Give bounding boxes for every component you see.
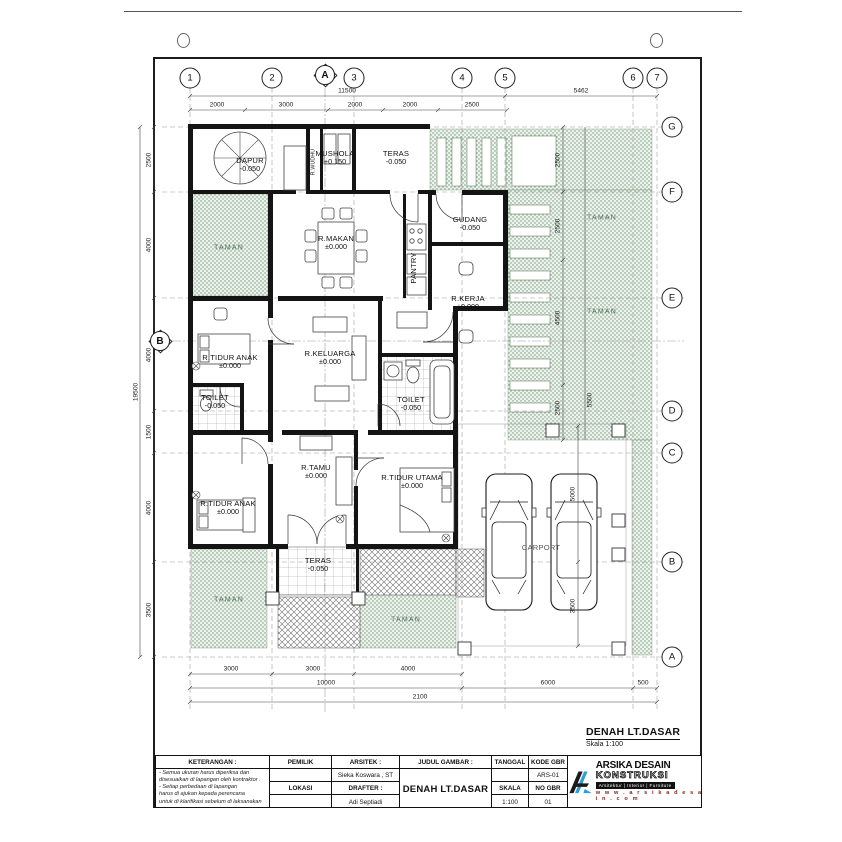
grid-label: B <box>669 557 675 568</box>
room-level: -0.050 <box>397 404 425 412</box>
room-level: ±0.000 <box>301 472 331 480</box>
room-level: ±0.000 <box>202 362 258 370</box>
dim-left-seg: 2500 <box>146 153 153 168</box>
dim-bottom-seg: 3000 <box>306 666 321 673</box>
section-letter: A <box>315 65 335 85</box>
room-label-rtidur-utama: R.TIDUR UTAMA ±0.000 <box>381 474 443 490</box>
room-level: ±0.000 <box>305 358 356 366</box>
room-label-rmakan: R.MAKAN ±0.000 <box>318 235 354 251</box>
note-line: disesuaikan di lapangan oleh kontraktor … <box>159 777 265 784</box>
room-label-taman-bawah-kiri: TAMAN <box>214 596 244 603</box>
grid-bubble-F: F <box>662 182 683 203</box>
drafter-header: DRAFTER : <box>332 782 399 795</box>
tanggal-value <box>492 769 528 782</box>
grid-bubble-A: A <box>662 647 683 668</box>
grid-bubble-1: 1 <box>180 68 201 89</box>
room-name: PANTRY <box>410 252 418 283</box>
pemilik-value <box>270 769 331 782</box>
logo-website: w w w . a r s i k a d e s a i n . c o m <box>596 790 703 802</box>
car-icon <box>482 474 536 610</box>
dim-top-seg: 3000 <box>279 102 294 109</box>
room-label-taman-kanan-1: TAMAN <box>587 214 617 221</box>
room-level: +0.150 <box>316 158 355 166</box>
grid-label: 3 <box>351 73 356 84</box>
room-level: -0.050 <box>236 165 264 173</box>
room-label-pantry: PANTRY <box>410 252 418 283</box>
room-name: TAMAN <box>587 214 617 221</box>
dim-inner-right: 2500 <box>555 219 562 234</box>
room-label-toilet-kanan: TOILET -0.050 <box>397 396 425 412</box>
grid-bubble-C: C <box>662 443 683 464</box>
grid-label: 4 <box>459 73 464 84</box>
grid-bubble-3: 3 <box>344 68 365 89</box>
room-label-carport: CARPORT <box>522 544 560 552</box>
room-level: -0.050 <box>201 402 229 410</box>
keterangan-notes: - Semua ukuran harus diperiksa dan dises… <box>159 770 265 806</box>
dim-bottom-seg: 4000 <box>401 666 416 673</box>
room-name: TAMAN <box>587 308 617 315</box>
drawing-title: DENAH LT.DASAR <box>403 784 488 795</box>
tb-col-tanggal: TANGGAL SKALA 1:100 <box>491 756 528 807</box>
sheet-title-block: DENAH LT.DASAR Skala 1:100 <box>586 722 702 748</box>
logo-name-bottom: KONSTRUKSI <box>596 771 669 781</box>
grid-label: E <box>669 293 675 304</box>
kode-value: ARS-01 <box>529 769 567 782</box>
dim-bottom-overall: 6000 <box>541 680 556 687</box>
drafter-name: Adi Septiadi <box>332 795 399 809</box>
dim-left-seg: 4000 <box>146 501 153 516</box>
tanggal-header: TANGGAL <box>492 756 528 769</box>
grid-bubble-G: G <box>662 117 683 138</box>
dim-left-seg: 4000 <box>146 348 153 363</box>
section-marker-A: A <box>312 62 338 88</box>
room-level: -0.050 <box>305 565 331 573</box>
room-level: ±0.000 <box>200 508 256 516</box>
dim-inner-right: 2500 <box>555 401 562 416</box>
note-line: harus di ajukan kepada perencana <box>159 791 265 798</box>
room-label-rwudhu: R.WUDHU <box>311 149 316 175</box>
grid-label: F <box>669 187 675 198</box>
dim-inner-right: 5500 <box>587 393 594 408</box>
grid-label: 5 <box>502 73 507 84</box>
room-label-rtidur-anak-2: R.TIDUR ANAK ±0.000 <box>200 500 256 516</box>
dim-top-seg: 2000 <box>210 102 225 109</box>
lokasi-header: LOKASI <box>270 782 331 795</box>
dim-carport: 5000 <box>570 487 577 502</box>
dim-left-seg: 1500 <box>146 425 153 440</box>
room-label-dapur: DAPUR -0.050 <box>236 157 264 173</box>
logo-mark-icon <box>568 764 592 800</box>
tb-col-judul: JUDUL GAMBAR : DENAH LT.DASAR <box>399 756 491 807</box>
kode-header: KODE GBR <box>529 756 567 769</box>
grid-bubble-2: 2 <box>262 68 283 89</box>
title-block: KETERANGAN : - Semua ukuran harus diperi… <box>155 755 702 808</box>
tb-col-arsitek: ARSITEK : Sieka Koswara , ST DRAFTER : A… <box>331 756 399 807</box>
room-label-rkerja: R.KERJA ±0.000 <box>451 295 484 311</box>
tb-col-logo: ARSIKA DESAIN KONSTRUKSI Arsitektur | In… <box>567 756 703 807</box>
dim-left-overall: 19500 <box>133 383 140 401</box>
judul-header: JUDUL GAMBAR : <box>400 756 491 769</box>
room-label-taman-kiri: TAMAN <box>214 244 244 251</box>
dim-top-overall-1: 11500 <box>338 88 356 95</box>
grid-bubble-E: E <box>662 288 683 309</box>
section-label: A <box>321 70 328 81</box>
dim-left-seg: 3500 <box>146 603 153 618</box>
section-letter: B <box>150 331 170 351</box>
room-level: -0.050 <box>453 224 488 232</box>
dim-bottom-total: 2100 <box>413 694 428 701</box>
plan-linework <box>0 0 842 842</box>
note-line: - Semua ukuran harus diperiksa dan <box>159 770 265 777</box>
dim-top-seg: 2500 <box>465 102 480 109</box>
room-level: ±0.000 <box>318 243 354 251</box>
sheet-title: DENAH LT.DASAR <box>586 726 680 740</box>
room-label-teras-bawah: TERAS -0.050 <box>305 557 331 573</box>
dim-bottom-seg: 3000 <box>224 666 239 673</box>
grid-label: 7 <box>654 73 659 84</box>
dim-bottom-overall: 500 <box>637 680 648 687</box>
arsitek-header: ARSITEK : <box>332 756 399 769</box>
note-line: - Setiap perbedaan di lapangan <box>159 784 265 791</box>
room-label-rkeluarga: R.KELUARGA ±0.000 <box>305 350 356 366</box>
tb-col-kode: KODE GBR ARS-01 NO GBR 01 <box>528 756 567 807</box>
dim-carport: 3500 <box>570 599 577 614</box>
room-label-mushola: MUSHOLA +0.150 <box>316 150 355 166</box>
room-label-rtamu: R.TAMU ±0.000 <box>301 464 331 480</box>
grid-label: C <box>669 448 676 459</box>
skala-value: 1:100 <box>492 795 528 809</box>
grid-bubble-D: D <box>662 401 683 422</box>
grid-label: G <box>668 122 675 133</box>
tb-col-keterangan: KETERANGAN : - Semua ukuran harus diperi… <box>156 756 269 807</box>
room-name: TAMAN <box>214 244 244 251</box>
nogbr-value: 01 <box>529 795 567 809</box>
grid-label: 6 <box>630 73 635 84</box>
skala-header: SKALA <box>492 782 528 795</box>
dim-top-seg: 2000 <box>348 102 363 109</box>
room-label-taman-bawah-kanan: TAMAN <box>391 616 421 623</box>
room-name: TAMAN <box>214 596 244 603</box>
room-name: CARPORT <box>522 544 560 552</box>
grid-bubble-5: 5 <box>495 68 516 89</box>
keterangan-header: KETERANGAN : <box>156 756 269 769</box>
grid-label: 1 <box>187 73 192 84</box>
dim-top-overall-2: 5462 <box>574 88 589 95</box>
dim-bottom-overall: 10000 <box>317 680 335 687</box>
dim-inner-right: 4500 <box>555 311 562 326</box>
nogbr-header: NO GBR <box>529 782 567 795</box>
grid-bubble-4: 4 <box>452 68 473 89</box>
arsitek-name: Sieka Koswara , ST <box>332 769 399 782</box>
room-level: ±0.000 <box>451 303 484 311</box>
room-label-taman-kanan-2: TAMAN <box>587 308 617 315</box>
logo-tagline: Arsitektur | Interior | Furniture <box>596 782 675 789</box>
room-label-gudang: GUDANG -0.050 <box>453 216 488 232</box>
dim-left-seg: 4000 <box>146 238 153 253</box>
company-logo: ARSIKA DESAIN KONSTRUKSI Arsitektur | In… <box>568 756 703 807</box>
dim-inner-right: 2500 <box>555 153 562 168</box>
tb-col-pemilik: PEMILIK LOKASI <box>269 756 331 807</box>
judul-value: DENAH LT.DASAR <box>400 769 491 809</box>
section-label: B <box>156 336 163 347</box>
grid-label: 2 <box>269 73 274 84</box>
room-level: ±0.000 <box>381 482 443 490</box>
grid-bubble-6: 6 <box>623 68 644 89</box>
pemilik-header: PEMILIK <box>270 756 331 769</box>
room-label-toilet-kiri: TOILET -0.050 <box>201 394 229 410</box>
sheet-scale: Skala 1:100 <box>586 741 702 748</box>
carport-boundary <box>458 424 626 646</box>
room-label-teras-atas: TERAS -0.050 <box>383 150 409 166</box>
lokasi-value <box>270 795 331 809</box>
grid-bubble-7: 7 <box>647 68 668 89</box>
grid-bubble-B: B <box>662 552 683 573</box>
note-line: untuk di klarifikasi sebelum di laksanak… <box>159 799 265 806</box>
room-name: TAMAN <box>391 616 421 623</box>
floor-plan-sheet: 1 2 3 4 5 6 7 G F E D C B A A B 11500 54… <box>0 0 842 842</box>
grid-label: A <box>669 652 675 663</box>
room-level: -0.050 <box>383 158 409 166</box>
grid-label: D <box>669 406 676 417</box>
room-name: R.WUDHU <box>311 149 316 175</box>
room-label-rtidur-anak-1: R.TIDUR ANAK ±0.000 <box>202 354 258 370</box>
dim-top-seg: 2000 <box>403 102 418 109</box>
